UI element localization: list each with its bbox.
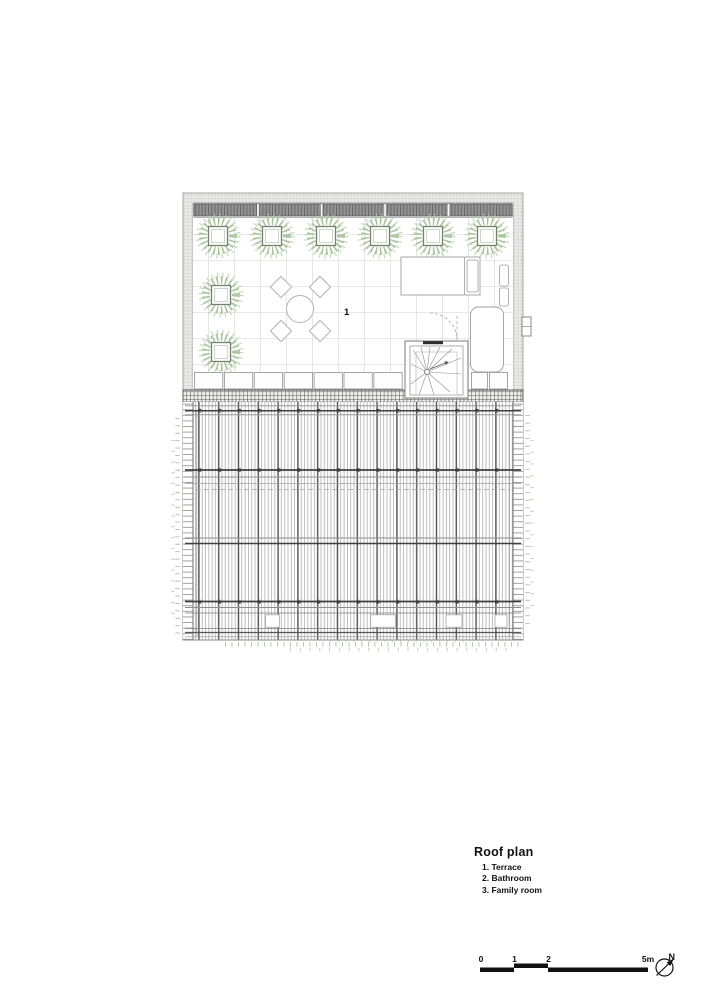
roof-edge-hatch-band [183, 390, 523, 402]
scale-tick-5m: 5m [642, 954, 655, 964]
plan-legend: 1. Terrace 2. Bathroom 3. Family room [482, 862, 542, 896]
scale-bar: 0 1 2 5m [479, 954, 655, 972]
legend-item: 3. Family room [482, 885, 542, 896]
scale-tick-2: 2 [546, 954, 551, 964]
plan-title: Roof plan [474, 845, 542, 859]
scale-segment [514, 964, 548, 969]
legend-item: 2. Bathroom [482, 873, 542, 884]
legend-item: 1. Terrace [482, 862, 542, 873]
wall-bench-cushions [500, 265, 509, 306]
pillow-icon [467, 260, 478, 292]
pergola-right-rail [513, 402, 523, 640]
daybed-icon [401, 257, 480, 295]
scale-segment [548, 968, 648, 973]
pergola-slats [193, 402, 513, 640]
spiral-stair-icon [405, 341, 468, 398]
sofa-icon [471, 307, 504, 372]
scale-tick-0: 0 [479, 954, 484, 964]
north-label: N [669, 952, 676, 962]
terrace-number-label: 1 [344, 307, 350, 318]
stair-threshold [423, 341, 443, 344]
wall-vent-box [522, 317, 531, 336]
scale-tick-1: 1 [512, 954, 517, 964]
drawing-sheet: 1 [0, 0, 707, 1000]
louver-shade-band [194, 204, 512, 218]
pergola-left-rail [183, 402, 193, 640]
title-block: Roof plan 1. Terrace 2. Bathroom 3. Fami… [474, 845, 542, 896]
table-icon [287, 296, 314, 323]
roof-plan-drawing: 1 [0, 0, 707, 1000]
scale-segment [480, 968, 514, 973]
pergola-roof [183, 402, 523, 640]
north-arrow-icon: N [656, 952, 675, 976]
